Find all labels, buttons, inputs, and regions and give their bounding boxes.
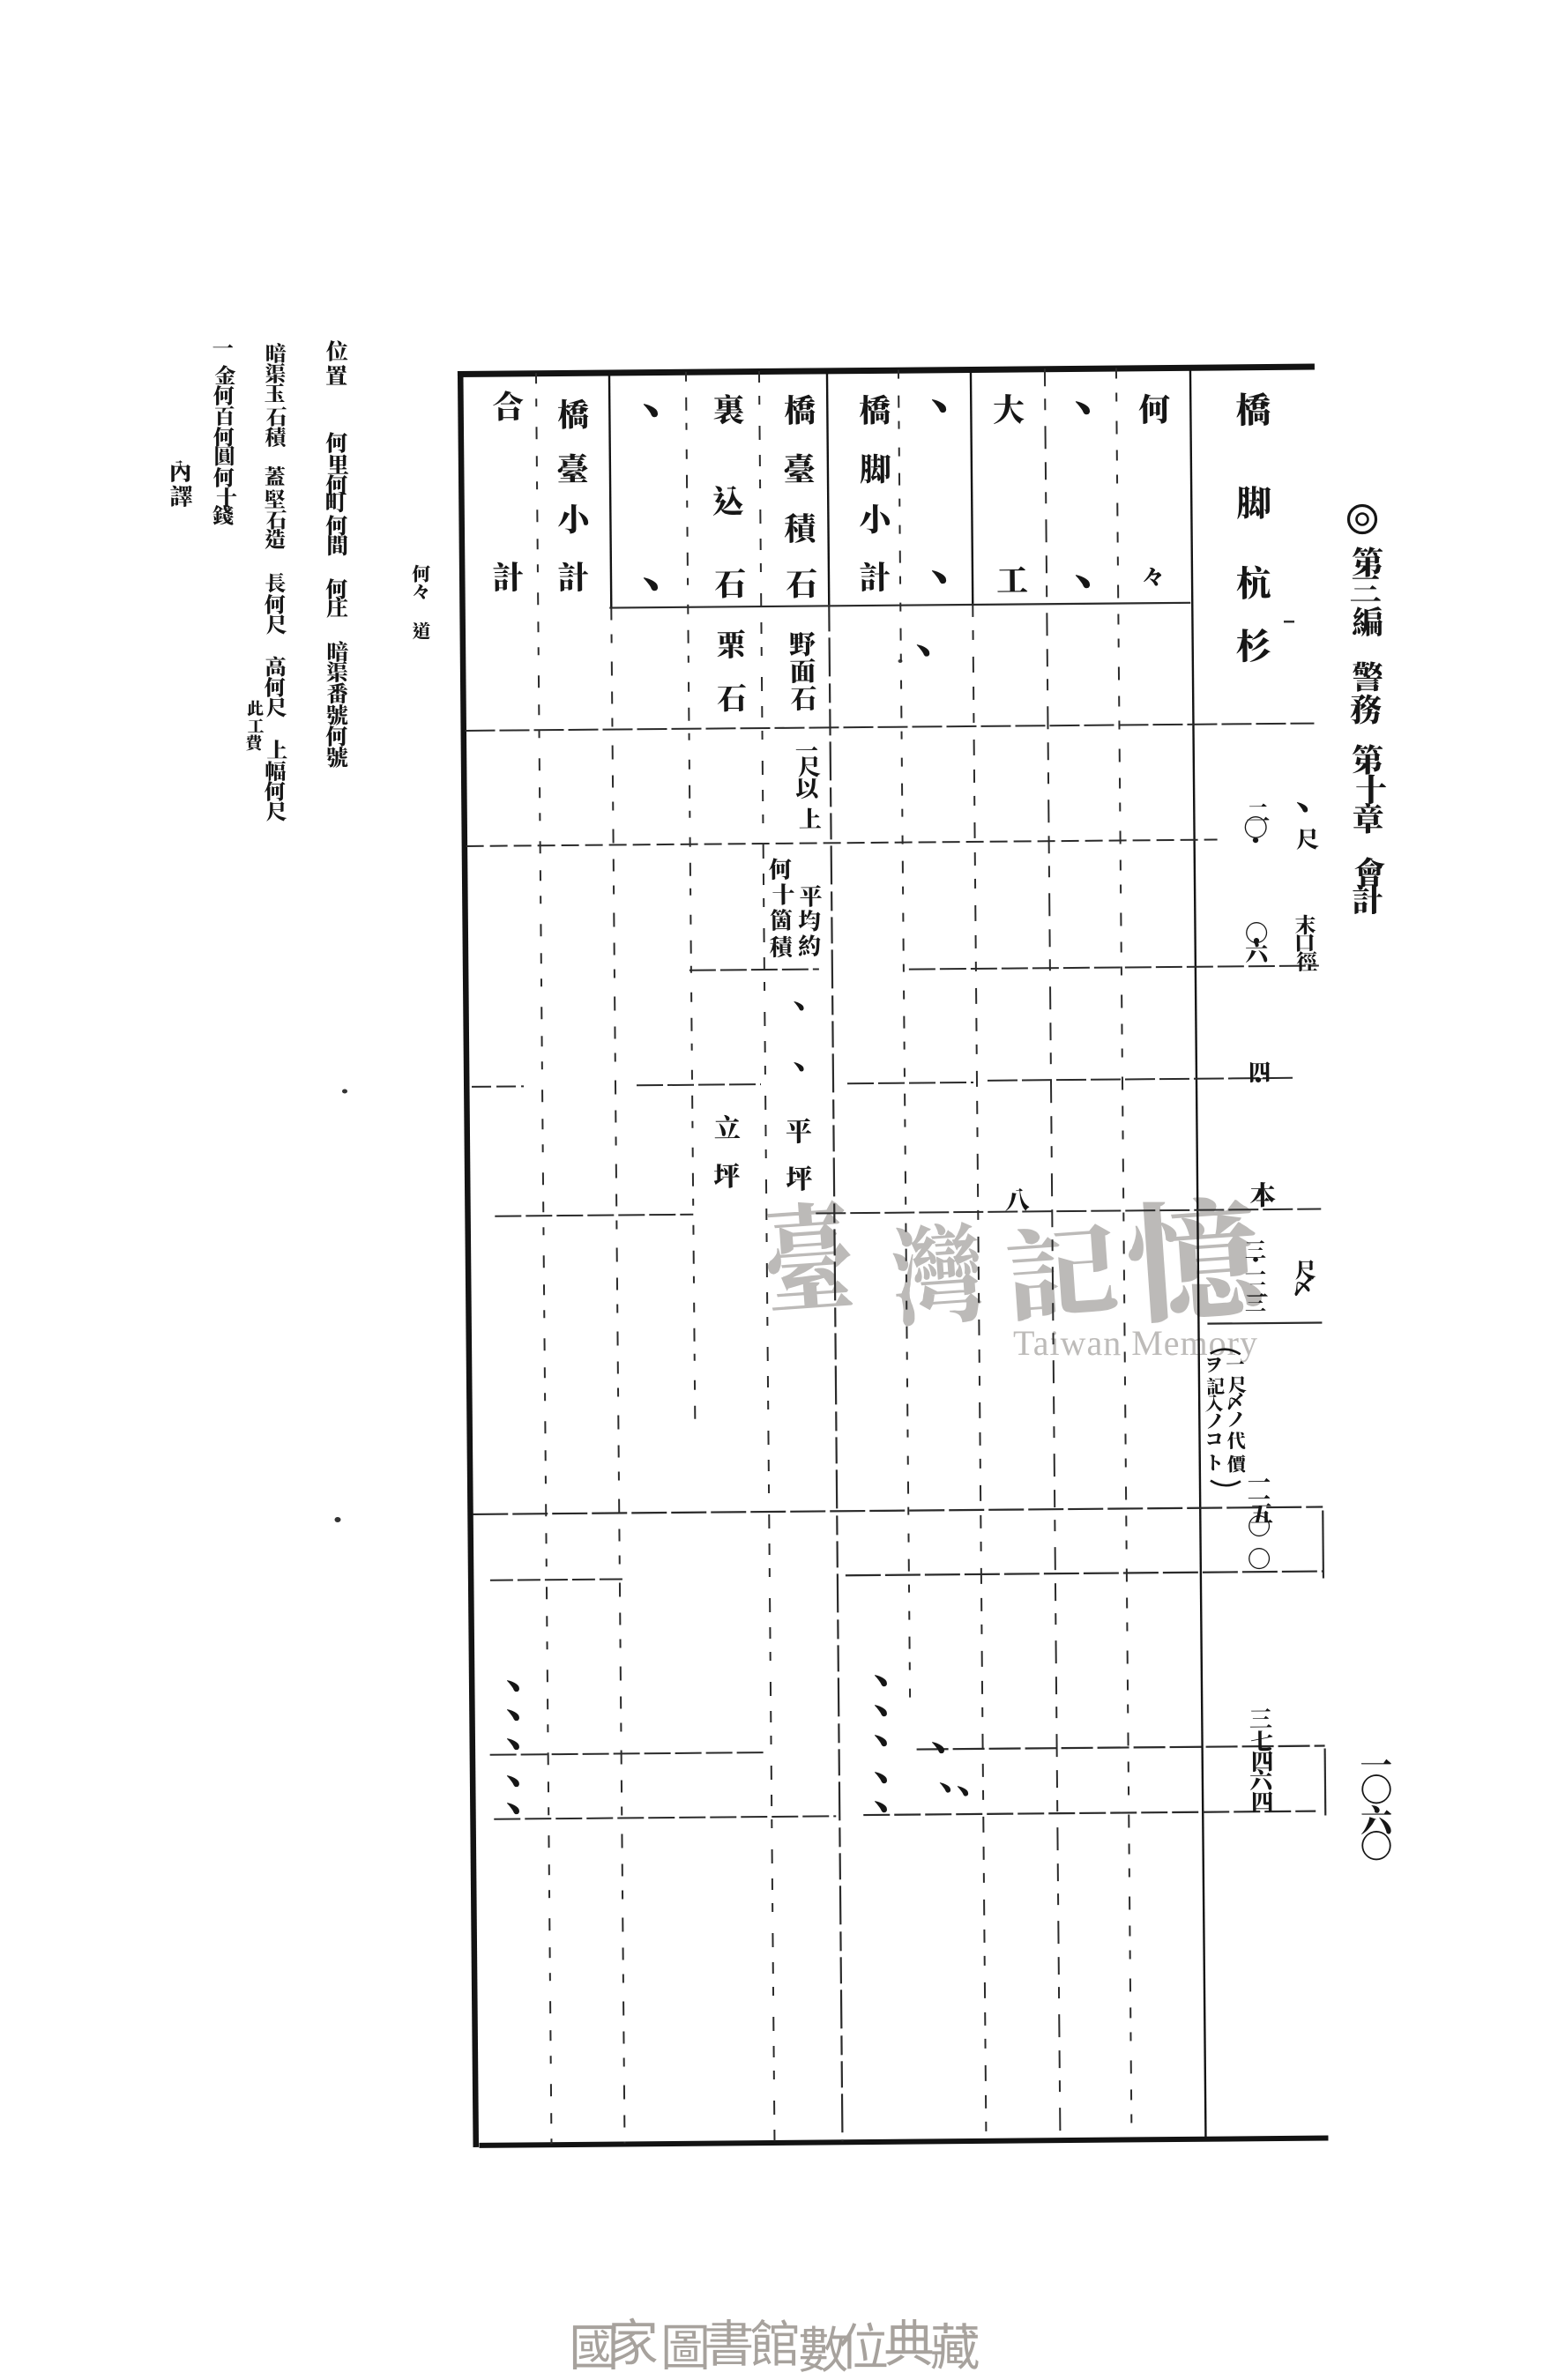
svg-text:Taiwan Memory: Taiwan Memory (1013, 1323, 1258, 1363)
